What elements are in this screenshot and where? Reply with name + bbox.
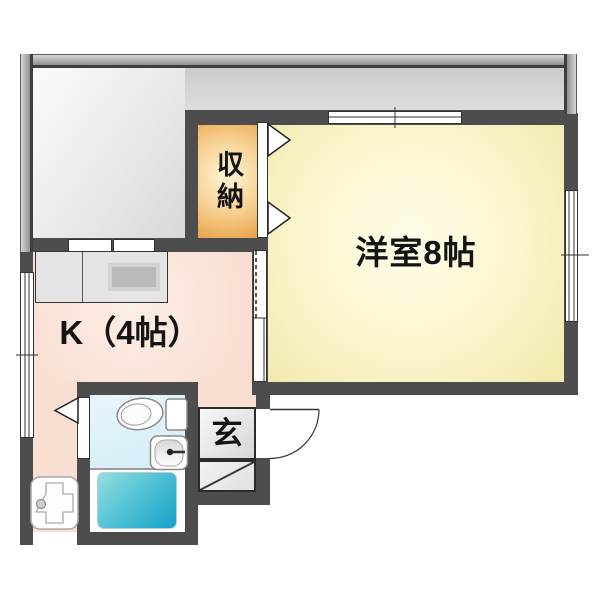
kitchen-room-hall — [198, 382, 256, 408]
wall-entrance-bottom — [186, 492, 270, 505]
balcony-wall-right — [564, 54, 577, 114]
western-room-label: 洋室8帖 — [280, 236, 552, 269]
west-room-top-window — [328, 111, 462, 124]
entrance-area: 玄 — [198, 407, 256, 460]
bathroom-door — [77, 397, 90, 459]
closet-door — [257, 122, 268, 238]
balcony-wall-top — [20, 54, 577, 68]
counter-opening-1 — [68, 239, 112, 252]
stove — [108, 263, 160, 291]
counter-opening-2 — [113, 239, 155, 252]
closet-label: 収納 — [198, 128, 257, 236]
floor-plan: 玄 — [0, 0, 600, 600]
kitchen-label: K（4帖） — [35, 316, 225, 349]
entrance-door-opening — [256, 409, 270, 458]
sliding-door — [253, 250, 267, 382]
bathtub — [97, 472, 177, 529]
wall-bottom-west — [252, 382, 578, 395]
bathroom-wet-floor — [90, 395, 185, 468]
wall-closet-left — [185, 110, 198, 252]
entrance-label: 玄 — [212, 418, 243, 449]
counter-divider — [36, 252, 83, 302]
entrance-step — [198, 460, 256, 492]
balcony-wall-left — [20, 54, 33, 252]
west-room-right-window — [565, 190, 578, 322]
kitchen-room-left — [33, 382, 77, 532]
entrance-door-arc — [270, 410, 319, 459]
balcony-area — [33, 68, 185, 238]
balcony-strip — [185, 68, 564, 110]
kitchen-window — [20, 272, 34, 438]
